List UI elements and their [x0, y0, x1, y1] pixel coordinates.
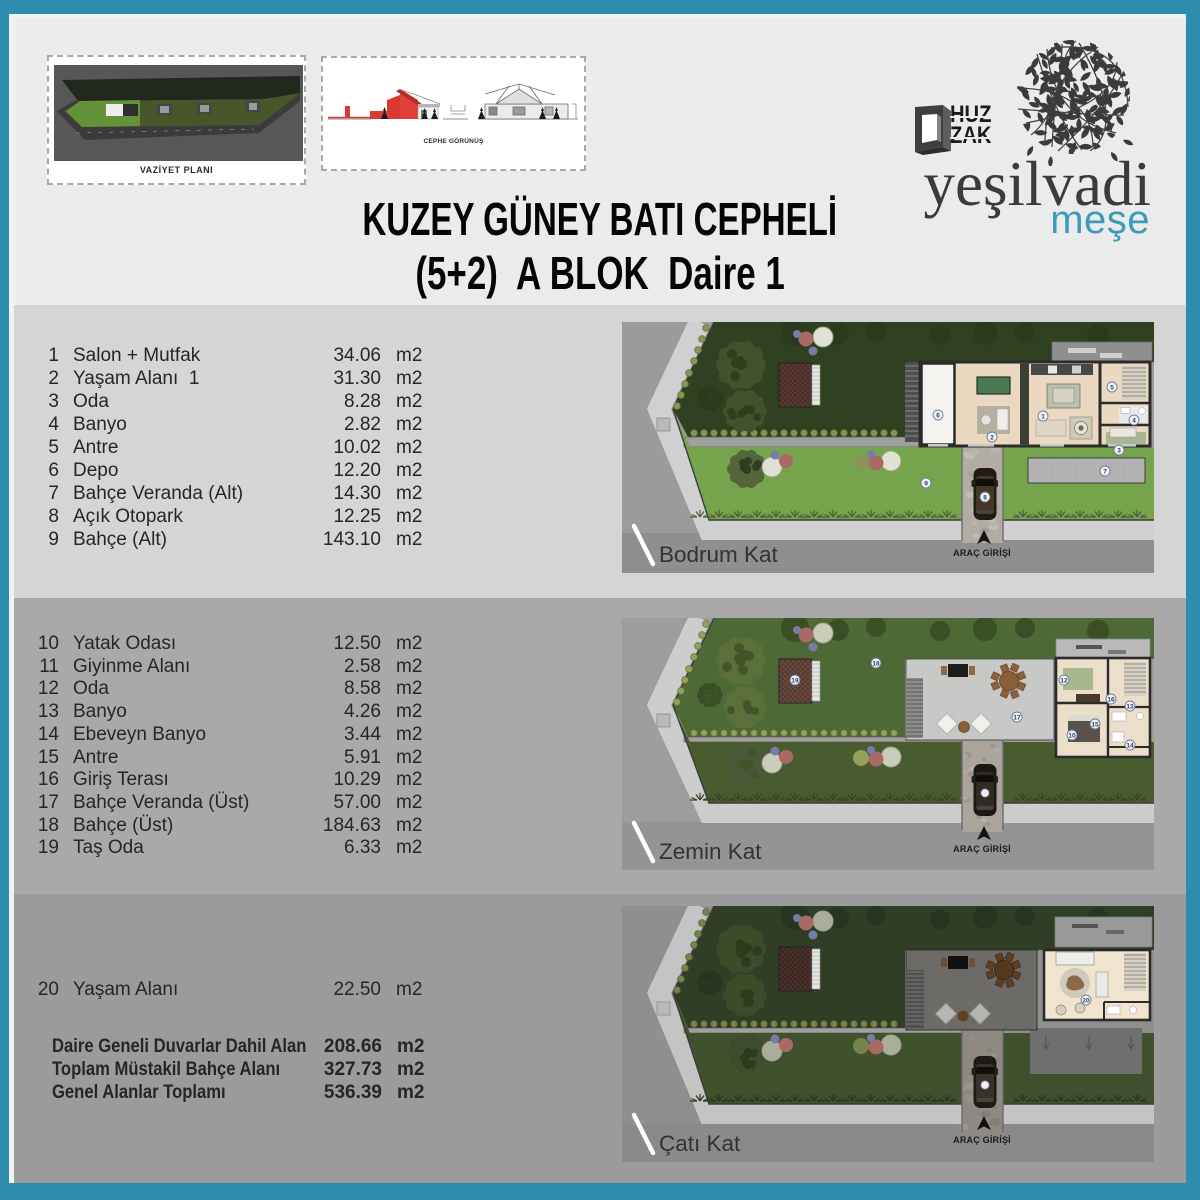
svg-text:12: 12 — [1060, 677, 1068, 684]
svg-text:10: 10 — [1068, 732, 1076, 739]
svg-text:1: 1 — [1041, 413, 1045, 420]
svg-text:16: 16 — [1107, 696, 1115, 703]
svg-text:18: 18 — [872, 660, 880, 667]
svg-text:6: 6 — [936, 412, 940, 419]
svg-text:9: 9 — [924, 480, 928, 487]
svg-text:7: 7 — [1103, 468, 1107, 475]
svg-text:ARAÇ GİRİŞİ: ARAÇ GİRİŞİ — [953, 548, 1011, 558]
svg-text:ARAÇ GİRİŞİ: ARAÇ GİRİŞİ — [953, 1135, 1011, 1145]
svg-text:2: 2 — [990, 434, 994, 441]
svg-text:17: 17 — [1013, 714, 1021, 721]
svg-text:20: 20 — [1082, 997, 1090, 1004]
svg-text:19: 19 — [791, 677, 799, 684]
svg-text:8: 8 — [983, 494, 987, 501]
svg-text:15: 15 — [1091, 721, 1099, 728]
svg-text:4: 4 — [1132, 417, 1136, 424]
svg-text:Bodrum Kat: Bodrum Kat — [659, 542, 779, 567]
svg-text:Zemin Kat: Zemin Kat — [659, 839, 762, 864]
svg-text:ARAÇ GİRİŞİ: ARAÇ GİRİŞİ — [953, 844, 1011, 854]
svg-text:13: 13 — [1126, 703, 1134, 710]
svg-text:Çatı Kat: Çatı Kat — [659, 1131, 741, 1156]
svg-text:3: 3 — [1117, 447, 1121, 454]
svg-text:14: 14 — [1126, 742, 1134, 749]
svg-text:5: 5 — [1110, 384, 1114, 391]
